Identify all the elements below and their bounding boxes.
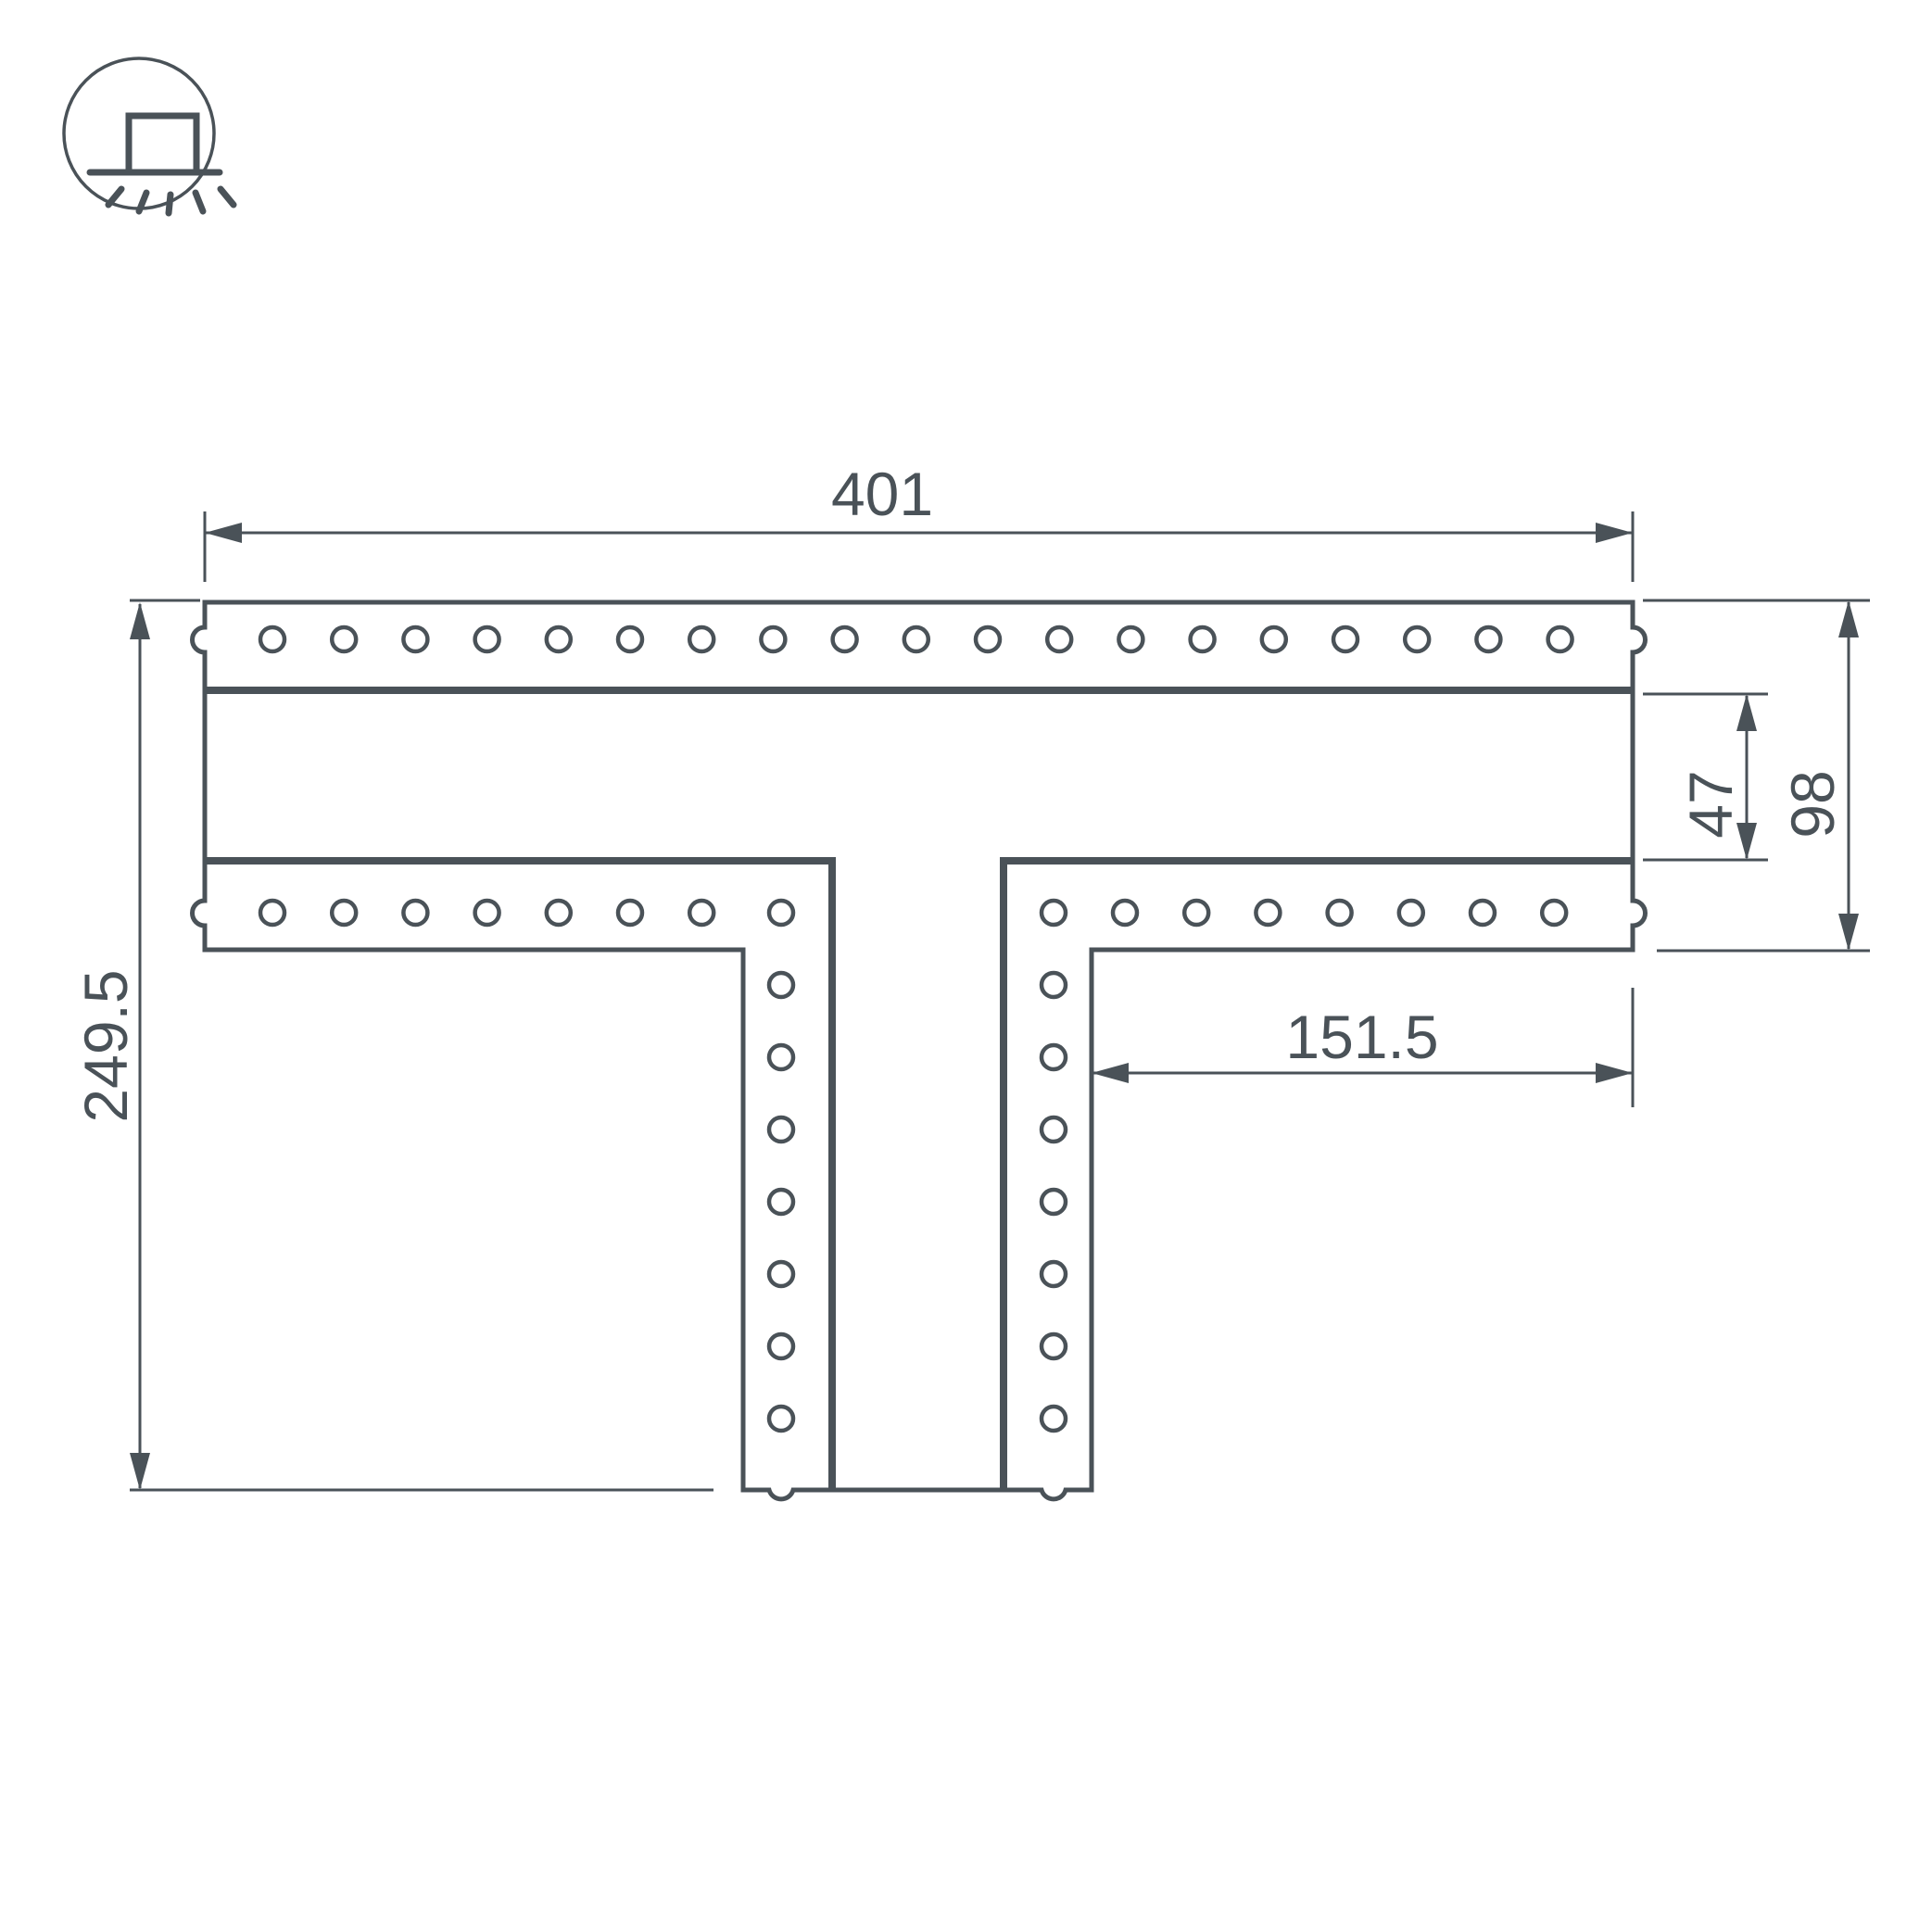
hole	[1328, 901, 1352, 925]
hole	[332, 901, 356, 925]
hole	[1405, 627, 1429, 651]
hole	[1047, 627, 1071, 651]
dimension-label-arm-length: 151.5	[1285, 1003, 1438, 1071]
arrowhead-bottom	[1838, 914, 1859, 951]
hole	[1542, 901, 1566, 925]
dimension-label-flange-width: 98	[1778, 770, 1847, 838]
hole	[689, 901, 713, 925]
hole	[1042, 973, 1066, 997]
hole	[1191, 627, 1215, 651]
dimension-total-width: 401	[205, 460, 1633, 582]
arrowhead-bottom	[130, 1453, 150, 1490]
hole	[1184, 901, 1208, 925]
hole	[1476, 627, 1500, 651]
dimension-label-total-height: 249.5	[71, 969, 140, 1122]
light-ray	[169, 195, 170, 213]
hole	[1042, 901, 1066, 925]
dimension-label-total-width: 401	[831, 460, 933, 528]
hole	[403, 627, 427, 651]
drawing-page: 401 249.5 47 98	[0, 0, 1932, 1931]
hole	[1042, 1262, 1066, 1286]
hole	[1118, 627, 1143, 651]
hole	[769, 901, 793, 925]
arrowhead-top	[1838, 600, 1859, 637]
arrowhead-top	[130, 602, 150, 639]
arrowhead-right	[1596, 1063, 1633, 1083]
hole	[761, 627, 785, 651]
hole	[1042, 1407, 1066, 1431]
hole	[769, 1407, 793, 1431]
hole	[769, 1045, 793, 1069]
channel-line-bottom-right	[1004, 861, 1633, 1488]
arrowhead-right	[1596, 523, 1633, 543]
hole	[618, 901, 642, 925]
arrowhead-left	[205, 523, 242, 543]
hole	[1042, 1117, 1066, 1142]
light-ray	[196, 193, 203, 211]
hole	[904, 627, 928, 651]
hole	[833, 627, 857, 651]
light-ray	[221, 189, 234, 205]
badge-circle	[64, 58, 214, 208]
hole	[1399, 901, 1423, 925]
hole	[769, 1334, 793, 1358]
hole	[769, 973, 793, 997]
recessed-light-icon	[90, 116, 234, 213]
mounting-type-badge	[64, 58, 234, 213]
hole	[1471, 901, 1495, 925]
arrowhead-left	[1092, 1063, 1129, 1083]
channel-line-bottom-left	[205, 861, 832, 1488]
hole	[1256, 901, 1280, 925]
hole	[1333, 627, 1357, 651]
arrowhead-top	[1736, 694, 1757, 731]
hole	[1042, 1045, 1066, 1069]
hole	[475, 627, 499, 651]
fixture-body	[129, 116, 196, 174]
hole	[547, 901, 571, 925]
hole	[547, 627, 571, 651]
hole	[976, 627, 1000, 651]
hole	[260, 901, 284, 925]
hole	[1042, 1190, 1066, 1214]
technical-drawing-canvas: 401 249.5 47 98	[0, 0, 1932, 1931]
hole	[1042, 1334, 1066, 1358]
hole	[260, 627, 284, 651]
hole	[403, 901, 427, 925]
hole	[769, 1117, 793, 1142]
hole	[769, 1190, 793, 1214]
hole	[1548, 627, 1572, 651]
hole	[475, 901, 499, 925]
dimension-total-height: 249.5	[71, 600, 713, 1490]
light-ray	[108, 189, 121, 205]
dimension-arm-length: 151.5	[1092, 988, 1633, 1107]
dimension-label-channel-width: 47	[1676, 770, 1745, 838]
hole	[1262, 627, 1286, 651]
hole	[689, 627, 713, 651]
hole	[769, 1262, 793, 1286]
hole	[332, 627, 356, 651]
dimension-channel-width: 47	[1643, 694, 1768, 860]
hole	[618, 627, 642, 651]
hole	[1113, 901, 1137, 925]
